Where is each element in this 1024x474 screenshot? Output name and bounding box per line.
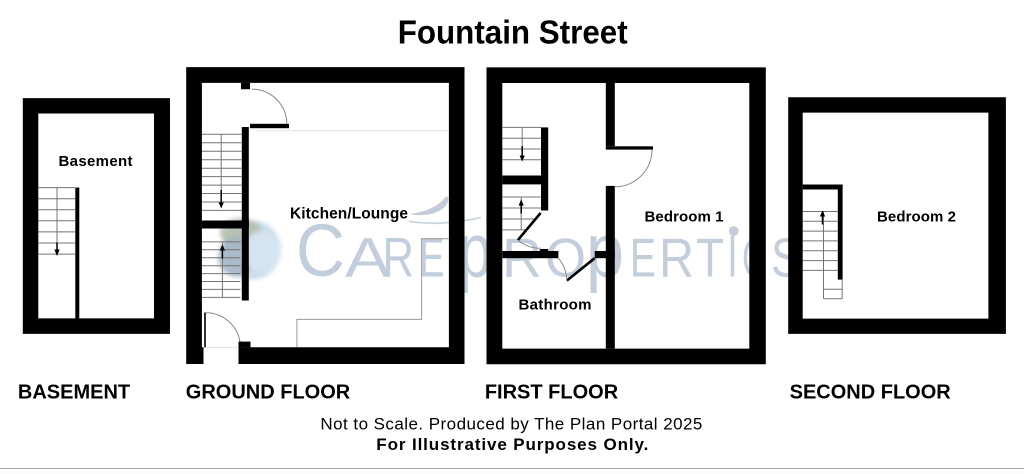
svg-text:Bedroom 1: Bedroom 1 <box>645 209 724 226</box>
svg-text:ı: ı <box>727 208 738 294</box>
svg-text:T: T <box>696 227 724 289</box>
svg-text:Bathroom: Bathroom <box>519 297 592 314</box>
svg-text:E: E <box>630 227 656 289</box>
svg-text:Fountain Street: Fountain Street <box>398 14 628 51</box>
svg-text:For Illustrative Purposes Only: For Illustrative Purposes Only. <box>376 435 648 454</box>
svg-text:Bedroom 2: Bedroom 2 <box>877 209 956 226</box>
svg-text:GROUND FLOOR: GROUND FLOOR <box>186 382 351 404</box>
svg-text:R: R <box>659 227 694 289</box>
svg-text:BASEMENT: BASEMENT <box>18 382 130 404</box>
svg-text:SECOND FLOOR: SECOND FLOOR <box>790 382 952 404</box>
svg-text:R: R <box>383 226 415 288</box>
svg-text:Basement: Basement <box>59 153 133 170</box>
svg-text:FIRST FLOOR: FIRST FLOOR <box>485 382 619 404</box>
svg-text:Not to Scale. Produced by The: Not to Scale. Produced by The Plan Porta… <box>320 414 702 433</box>
svg-text:Kitchen/Lounge: Kitchen/Lounge <box>290 206 408 223</box>
svg-text:E: E <box>419 226 445 288</box>
